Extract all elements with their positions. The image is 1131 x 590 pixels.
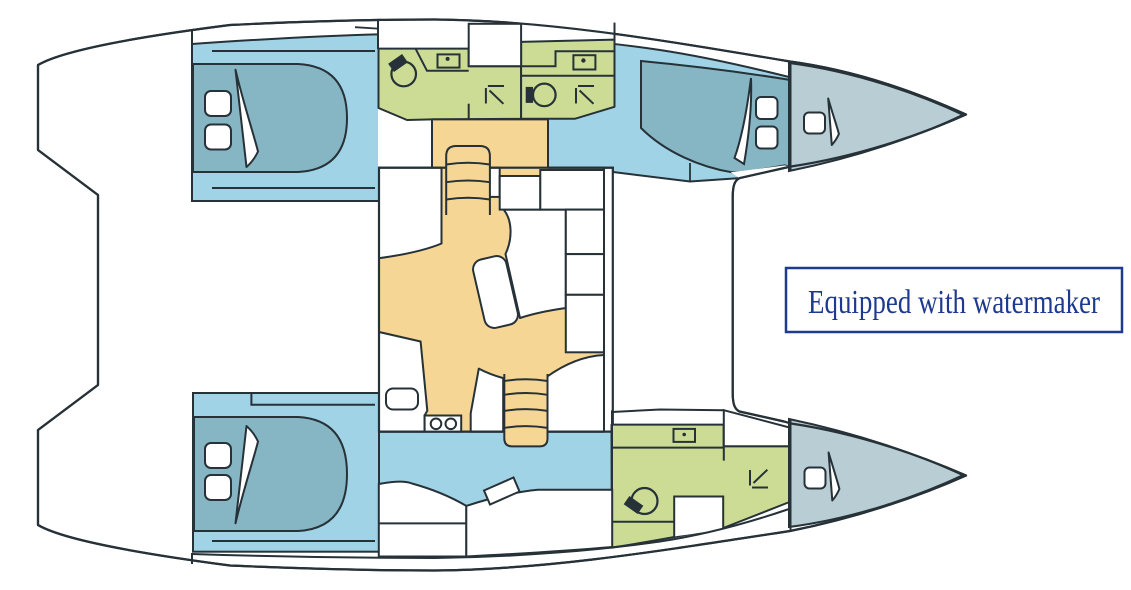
svg-text:Equipped with watermaker: Equipped with watermaker	[808, 284, 1101, 321]
